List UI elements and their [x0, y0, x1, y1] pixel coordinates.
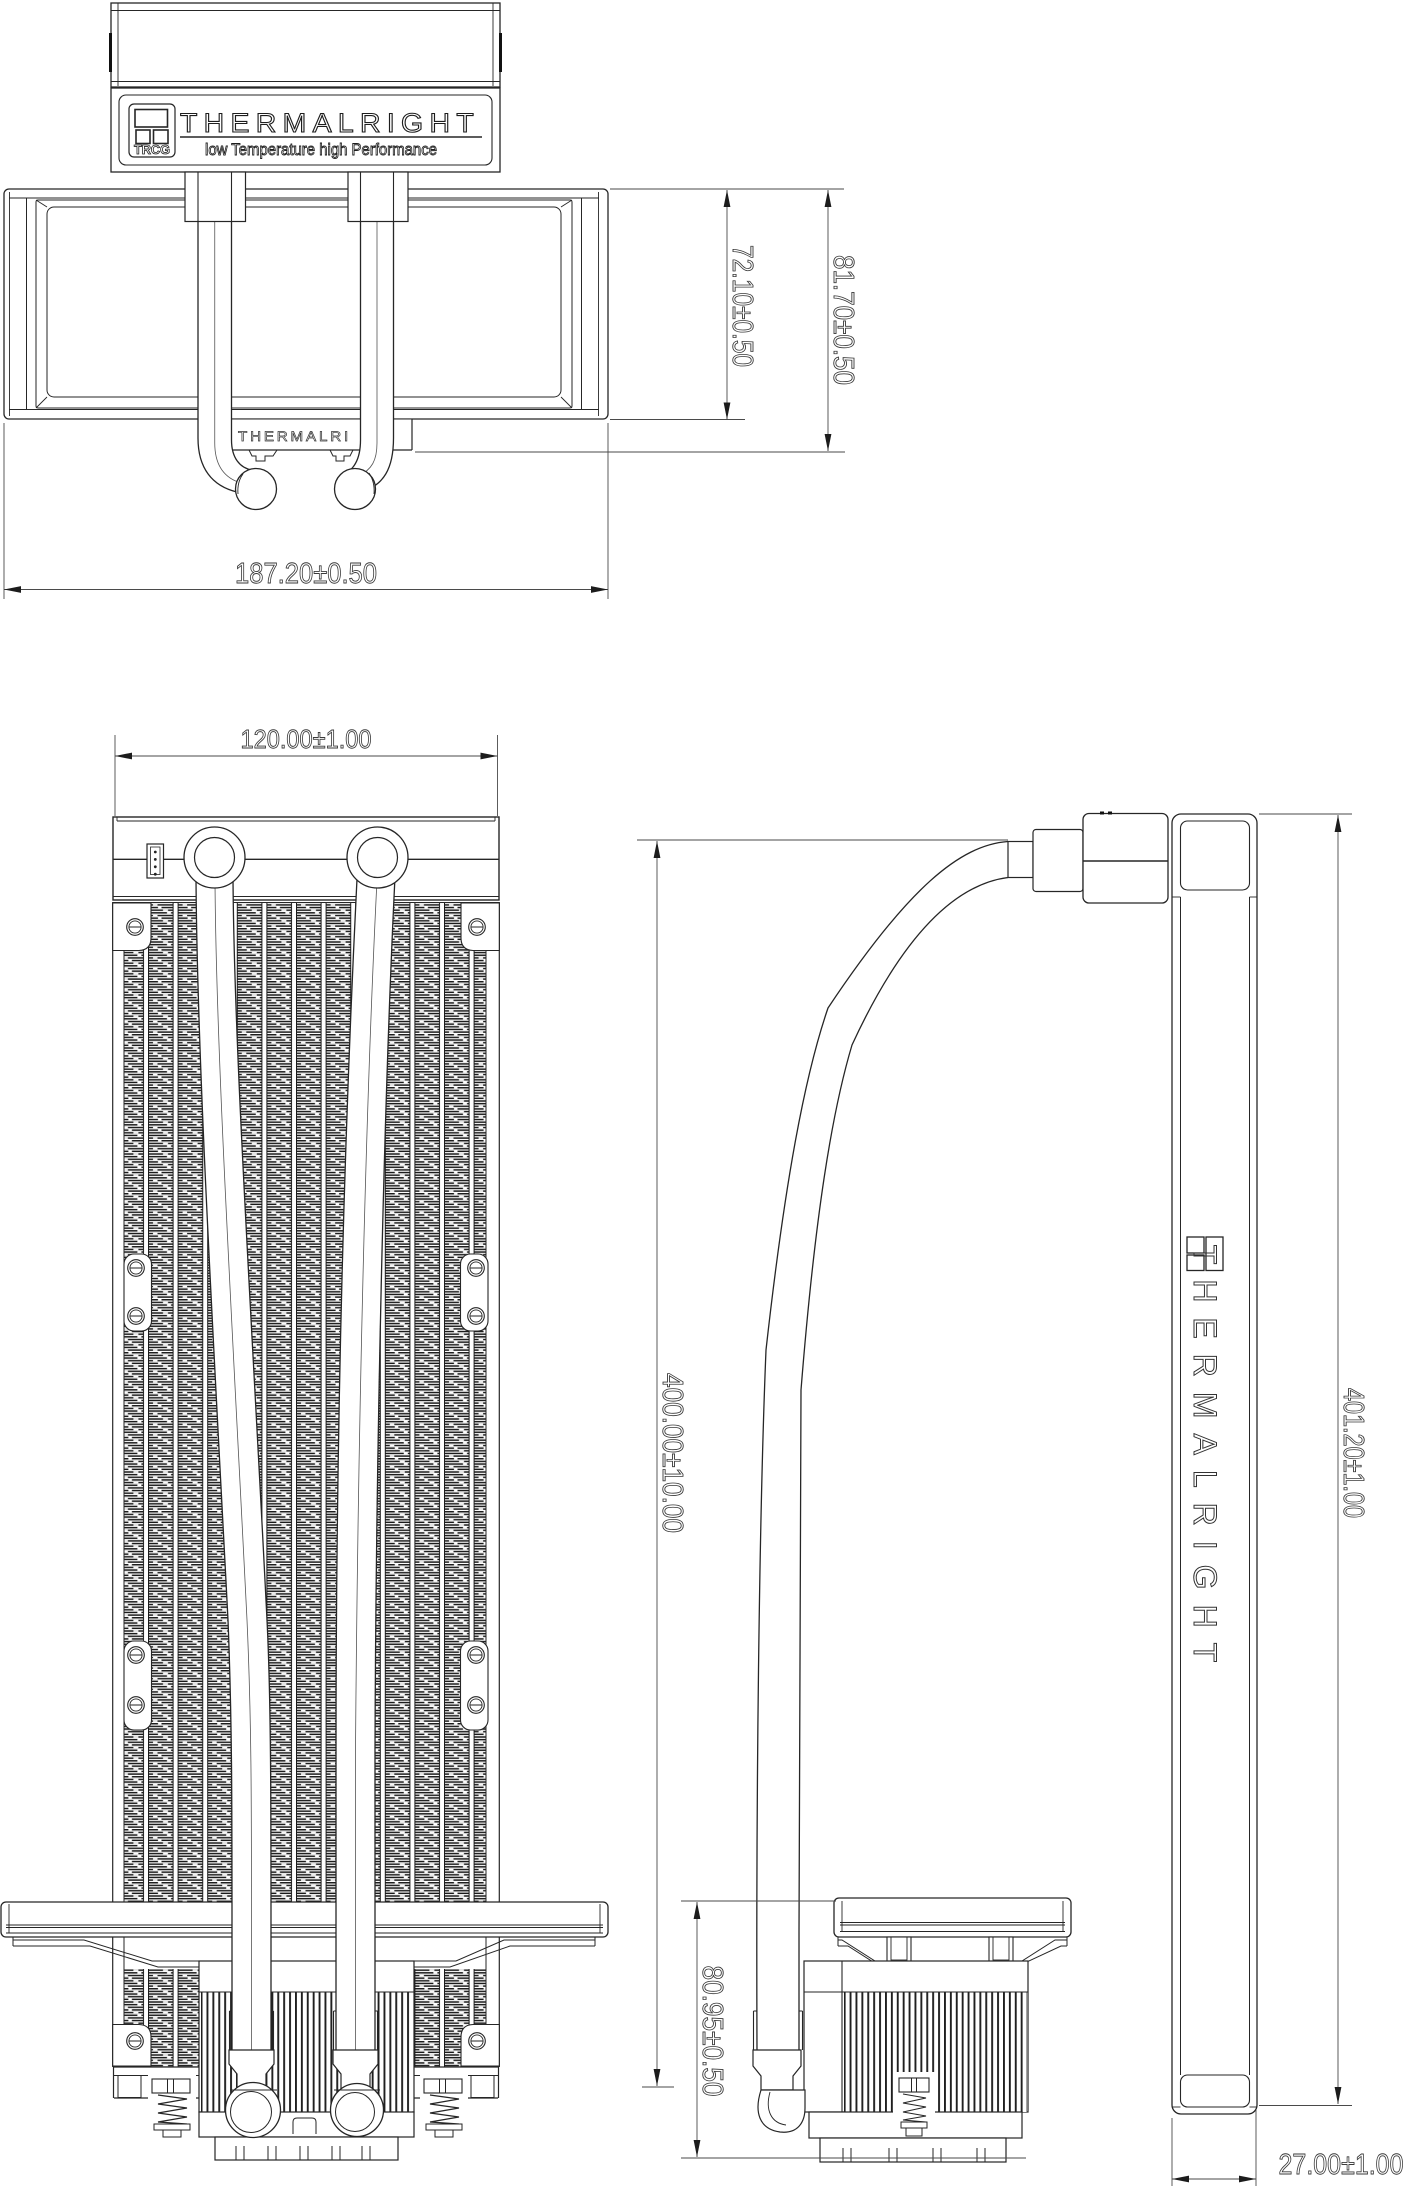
svg-text:80.95±0.50: 80.95±0.50 — [696, 1966, 728, 2097]
svg-text:72.10±0.50: 72.10±0.50 — [726, 245, 758, 367]
svg-text:THERMALRIGHT: THERMALRIGHT — [180, 108, 480, 138]
svg-text:401.20±1.00: 401.20±1.00 — [1337, 1388, 1369, 1518]
svg-text:THERMALRIGHT: THERMALRIGHT — [1187, 1245, 1223, 1677]
svg-text:120.00±1.00: 120.00±1.00 — [241, 724, 372, 754]
svg-text:27.00±1.00: 27.00±1.00 — [1279, 2149, 1404, 2181]
svg-text:187.20±0.50: 187.20±0.50 — [235, 558, 377, 590]
svg-text:THERMALRI: THERMALRI — [238, 429, 351, 444]
svg-text:400.00±10.00: 400.00±10.00 — [656, 1373, 688, 1533]
svg-text:81.70±0.50: 81.70±0.50 — [827, 255, 859, 385]
svg-text:TRCG: TRCG — [134, 142, 170, 157]
svg-text:low Temperature high Performan: low Temperature high Performance — [205, 140, 437, 159]
